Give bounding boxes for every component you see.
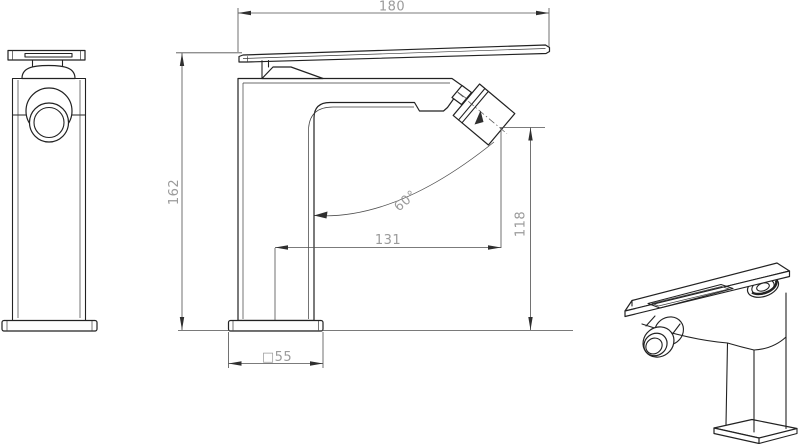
side-joint-dome: [22, 66, 75, 79]
dim-131-arrow-right: [488, 245, 501, 249]
front-stem-flare: [262, 67, 323, 79]
dim-angle-label: 60°: [392, 188, 420, 215]
perspective-view: [625, 263, 797, 444]
persp-column-left-edge: [726, 343, 728, 425]
dim-180-label: 180: [379, 0, 405, 15]
dim-118-arrow-bottom: [528, 317, 532, 330]
front-base: [229, 321, 324, 332]
persp-arm-right-curve: [754, 337, 786, 350]
dim-55-arrow-right: [310, 361, 323, 365]
technical-drawing: 180 162 131 118 60°: [0, 0, 800, 444]
front-body-outline: [238, 79, 464, 321]
dim-118-label: 118: [514, 211, 529, 237]
dim-180-arrow-right: [536, 11, 549, 15]
dimension-base-55: □55: [229, 332, 324, 368]
dim-162-arrow-bottom: [180, 317, 184, 330]
dimension-118: 118: [500, 128, 545, 331]
side-handle-plate: [8, 51, 85, 61]
angle-arc-arrowhead: [314, 212, 328, 219]
side-spout-front-circle: [30, 103, 69, 142]
dim-162-arrow-top: [180, 53, 184, 66]
dim-180-arrow-left: [238, 11, 251, 15]
side-base: [2, 321, 97, 332]
dim-118-arrow-top: [528, 128, 532, 141]
dim-162-label: 162: [167, 179, 182, 205]
dimension-180: 180: [238, 0, 549, 52]
dim-131-label: 131: [375, 233, 401, 248]
dim-55-label: □55: [262, 350, 292, 365]
dim-180-extension-lines: [238, 8, 549, 52]
side-view: [2, 51, 97, 332]
dim-55-arrow-left: [229, 361, 242, 365]
drawing-canvas: 180 162 131 118 60°: [0, 0, 800, 444]
